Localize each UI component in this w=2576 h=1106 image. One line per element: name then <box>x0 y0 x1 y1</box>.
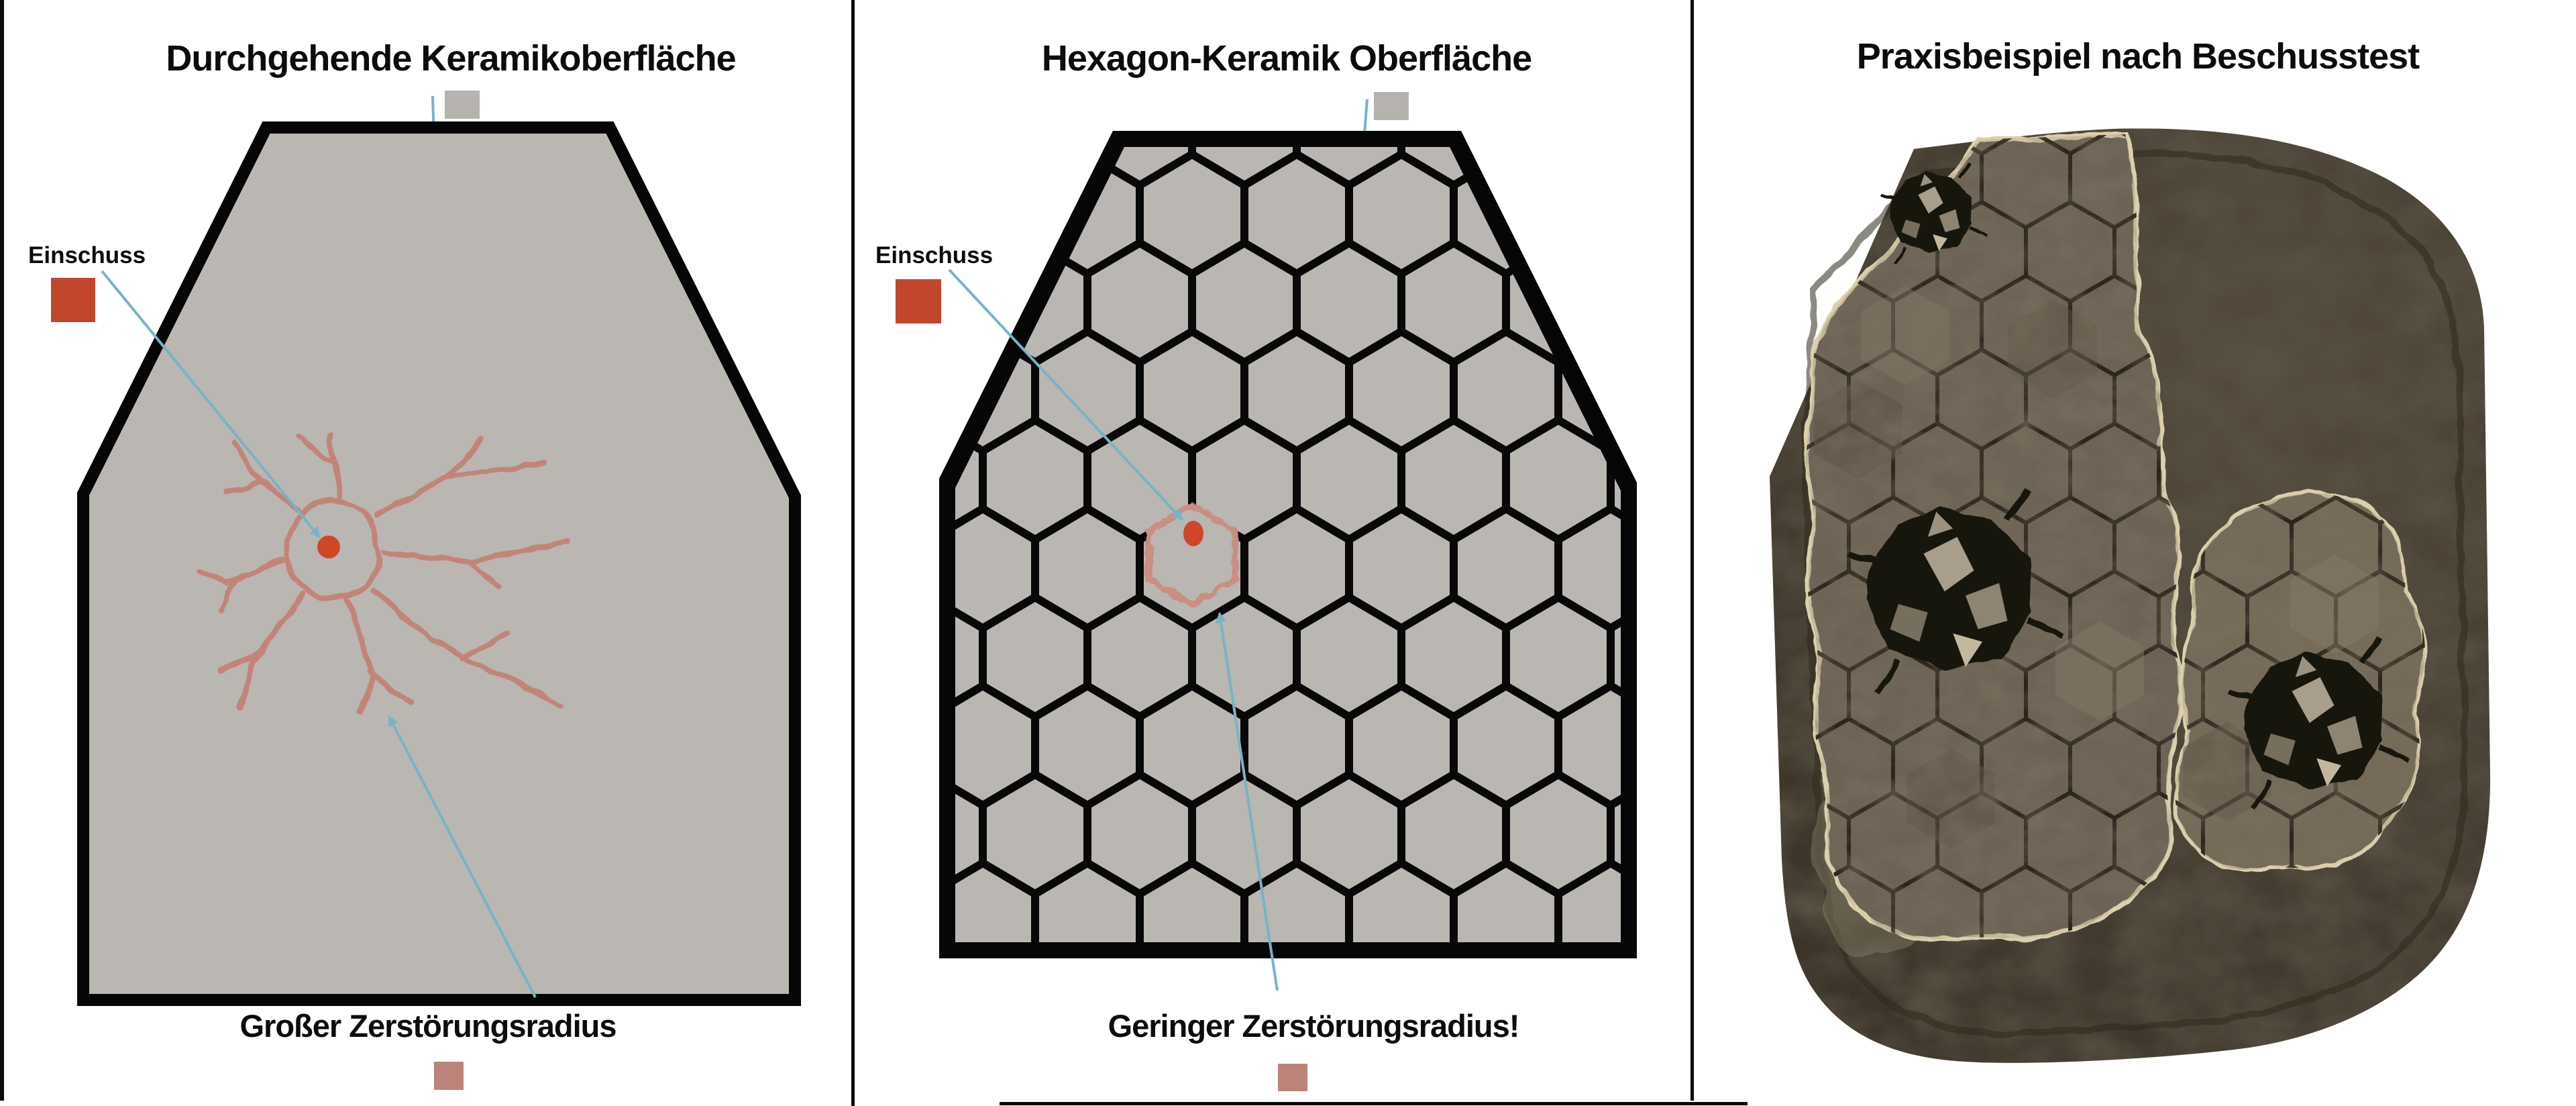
panel3-title: Praxisbeispiel nach Beschusstest <box>1857 36 2420 77</box>
panel2-impact-label: Einschuss <box>875 242 993 268</box>
impact-swatch <box>51 278 95 322</box>
impact-dot <box>1183 521 1203 546</box>
panel-divider-2 <box>1690 0 1694 1101</box>
panel1-impact-label: Einschuss <box>28 242 146 268</box>
panel-test-photo: Praxisbeispiel nach Beschusstest <box>1764 36 2490 1063</box>
panel2-result-label: Geringer Zerstörungsradius! <box>1108 1008 1519 1044</box>
radius-swatch <box>1278 1064 1307 1091</box>
ceramic-surface-swatch <box>1374 92 1409 120</box>
radius-swatch <box>434 1062 464 1090</box>
armor-plate-continuous <box>83 128 795 1000</box>
hexagon-grid <box>926 107 1657 973</box>
impact-swatch <box>896 279 941 323</box>
infographic-canvas: Durchgehende Keramikoberfläche Einschuss… <box>0 0 2576 1106</box>
panel-continuous-ceramic: Durchgehende Keramikoberfläche Einschuss… <box>28 38 795 1090</box>
bottom-border-segment <box>1000 1102 1748 1105</box>
left-border-line <box>0 0 4 1101</box>
infographic-svg: Durchgehende Keramikoberfläche Einschuss… <box>0 0 2576 1106</box>
panel-divider-1 <box>851 0 855 1106</box>
armor-photo <box>1764 121 2490 1063</box>
panel2-title: Hexagon-Keramik Oberfläche <box>1042 38 1532 79</box>
highlighted-hexagon <box>1149 505 1235 605</box>
impact-dot <box>317 536 340 558</box>
panel-hexagon-ceramic: Hexagon-Keramik Oberfläche Einschuss Ger… <box>875 38 1657 1091</box>
ceramic-surface-swatch <box>445 91 480 119</box>
panel1-title: Durchgehende Keramikoberfläche <box>166 38 735 79</box>
panel1-result-label: Großer Zerstörungsradius <box>240 1008 616 1044</box>
